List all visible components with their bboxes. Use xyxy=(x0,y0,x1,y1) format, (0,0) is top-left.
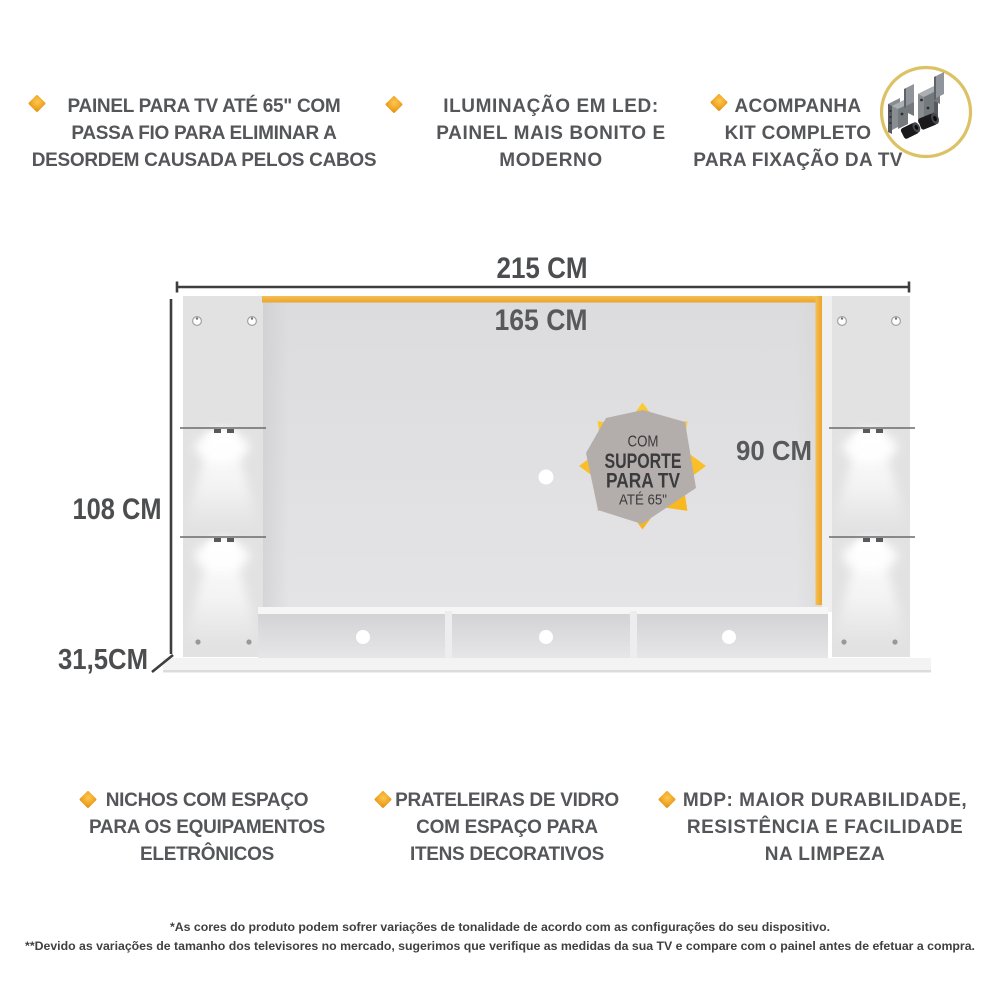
svg-text:215 CM: 215 CM xyxy=(497,252,588,285)
svg-text:108 CM: 108 CM xyxy=(73,493,162,526)
svg-text:ATÉ 65": ATÉ 65" xyxy=(619,492,667,509)
svg-text:31,5CM: 31,5CM xyxy=(58,644,148,676)
svg-text:COM: COM xyxy=(628,434,659,451)
svg-text:165 CM: 165 CM xyxy=(495,304,588,337)
svg-text:PARA TV: PARA TV xyxy=(606,470,680,493)
svg-text:90 CM: 90 CM xyxy=(736,435,812,466)
